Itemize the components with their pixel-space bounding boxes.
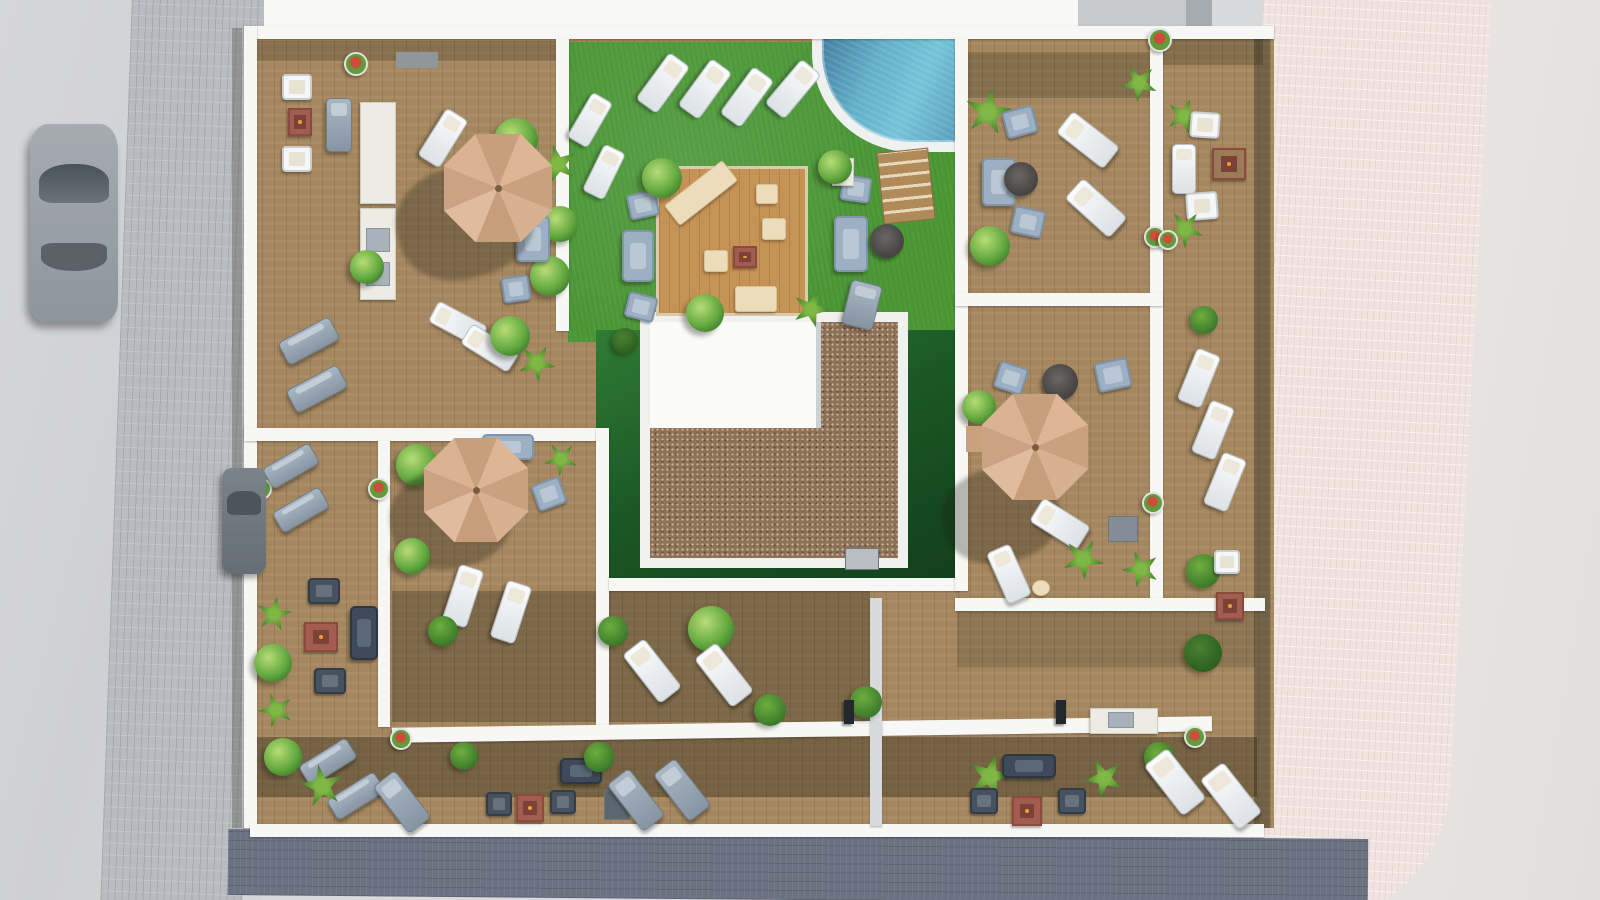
fire-table — [288, 108, 312, 136]
parapet-left — [244, 26, 257, 828]
plant — [254, 644, 292, 682]
flower-pot — [1142, 492, 1164, 514]
roof-edge-structure — [1186, 0, 1212, 27]
kitchen-sink — [1108, 712, 1134, 728]
parked-car — [30, 124, 118, 322]
sun-lounger — [1172, 144, 1196, 194]
light-post — [1056, 700, 1066, 724]
armchair — [970, 788, 998, 814]
bush — [450, 742, 478, 770]
bench-sofa — [326, 98, 352, 152]
coffee-table — [733, 246, 757, 268]
plant — [970, 226, 1010, 266]
fire-table — [1004, 162, 1038, 196]
armchair — [282, 146, 312, 172]
flower-pot — [368, 478, 390, 500]
seat-cushion — [756, 184, 778, 204]
fire-table — [1216, 592, 1244, 620]
bush — [850, 686, 882, 718]
plant — [490, 316, 530, 356]
bush — [612, 328, 638, 354]
armchair — [1058, 788, 1086, 814]
flower-pot — [1184, 726, 1206, 748]
kitchen-sink — [366, 228, 390, 252]
plant — [394, 538, 430, 574]
seat-cushion — [762, 218, 786, 240]
parapet-shadow — [968, 52, 1150, 98]
partition-wall — [244, 428, 609, 441]
utility-box — [845, 548, 879, 570]
patio-umbrella — [424, 438, 528, 542]
patio-umbrella — [982, 394, 1088, 500]
plant — [686, 294, 724, 332]
bush — [584, 742, 614, 772]
bush — [1184, 634, 1222, 672]
partition-wall — [596, 428, 609, 728]
outdoor-kitchen — [360, 102, 396, 204]
sofa — [834, 216, 868, 272]
plant — [264, 738, 302, 776]
stair-core-white-roof — [650, 322, 820, 428]
sofa — [350, 606, 378, 660]
parapet-top — [250, 26, 1274, 39]
light-post — [844, 700, 854, 724]
rooftop-render — [0, 0, 1600, 900]
armchair — [486, 792, 512, 816]
sidewalk-bottom-shadow — [228, 829, 1369, 900]
flower-pot — [1158, 230, 1178, 250]
fire-table — [1012, 796, 1042, 826]
flower-pot — [390, 728, 412, 750]
fire-table — [516, 794, 544, 822]
bench-cushion — [735, 286, 777, 312]
flower-pot — [344, 52, 368, 76]
bush — [428, 616, 458, 646]
bush — [598, 616, 628, 646]
partition-wall — [609, 578, 959, 591]
parked-car — [222, 468, 266, 574]
fire-table — [304, 622, 338, 652]
flower-pot — [1148, 28, 1172, 52]
armchair — [500, 274, 531, 304]
roof-seam — [816, 322, 821, 428]
sofa — [622, 230, 654, 282]
patio-umbrella — [444, 134, 552, 242]
fire-table — [1212, 148, 1246, 180]
pool-steps — [876, 147, 935, 224]
deck-edge-shadow-left — [232, 28, 242, 828]
side-table — [1032, 580, 1050, 596]
bench — [396, 52, 438, 68]
parapet-shadow — [1163, 39, 1263, 65]
partition-wall — [955, 293, 1163, 306]
plant — [530, 256, 570, 296]
deck-edge-shadow-right — [1254, 34, 1270, 828]
fire-table — [870, 224, 904, 258]
armchair — [550, 790, 576, 814]
partition-wall — [1150, 39, 1163, 599]
armchair — [1185, 191, 1219, 221]
armchair — [1214, 550, 1240, 574]
armchair — [314, 668, 346, 694]
plant — [642, 158, 682, 198]
armchair — [308, 578, 340, 604]
sofa — [1002, 754, 1056, 778]
utility-box — [1108, 516, 1138, 542]
armchair — [282, 74, 312, 100]
bush — [754, 694, 786, 726]
plant — [818, 150, 852, 184]
armchair — [1189, 111, 1221, 139]
plant — [350, 250, 384, 284]
seat-cushion — [704, 250, 728, 272]
bush — [1190, 306, 1218, 334]
